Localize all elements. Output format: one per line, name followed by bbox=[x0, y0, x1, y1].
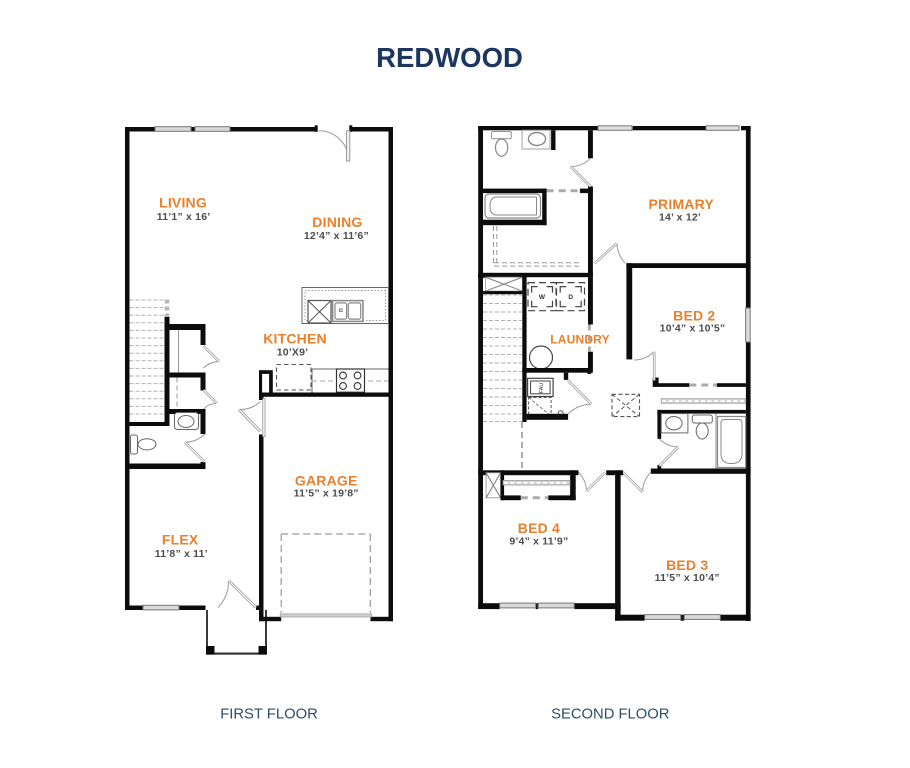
svg-text:BED 4: BED 4 bbox=[518, 520, 560, 536]
svg-text:GARAGE: GARAGE bbox=[295, 472, 358, 488]
svg-text:W: W bbox=[539, 294, 546, 301]
svg-text:11’1” x 16’: 11’1” x 16’ bbox=[157, 211, 211, 223]
svg-text:DINING: DINING bbox=[312, 214, 362, 230]
svg-text:LAUNDRY: LAUNDRY bbox=[550, 333, 610, 347]
svg-text:14’ x 12’: 14’ x 12’ bbox=[659, 211, 701, 223]
svg-text:11’5” x 19’8”: 11’5” x 19’8” bbox=[294, 487, 359, 499]
svg-text:FLEX: FLEX bbox=[162, 532, 199, 548]
svg-text:BED 3: BED 3 bbox=[666, 557, 708, 573]
svg-text:LIVING: LIVING bbox=[159, 195, 207, 211]
svg-text:FAU: FAU bbox=[539, 383, 545, 394]
svg-text:FIRST FLOOR: FIRST FLOOR bbox=[220, 707, 318, 723]
svg-text:PRIMARY: PRIMARY bbox=[648, 196, 714, 212]
svg-text:10’4” x 10’5”: 10’4” x 10’5” bbox=[660, 322, 726, 334]
svg-text:9’4” x 11’9”: 9’4” x 11’9” bbox=[509, 536, 568, 548]
svg-text:10’X9’: 10’X9’ bbox=[277, 347, 309, 359]
svg-text:BED 2: BED 2 bbox=[673, 307, 715, 323]
svg-text:11’8” x 11’: 11’8” x 11’ bbox=[155, 548, 208, 560]
svg-text:SECOND FLOOR: SECOND FLOOR bbox=[551, 707, 669, 723]
svg-text:REDWOOD: REDWOOD bbox=[376, 42, 523, 73]
svg-text:KITCHEN: KITCHEN bbox=[263, 330, 327, 346]
svg-text:11’5” x 10’4”: 11’5” x 10’4” bbox=[655, 572, 720, 584]
svg-text:12’4” x 11’6”: 12’4” x 11’6” bbox=[304, 230, 369, 242]
svg-text:D: D bbox=[568, 294, 573, 301]
